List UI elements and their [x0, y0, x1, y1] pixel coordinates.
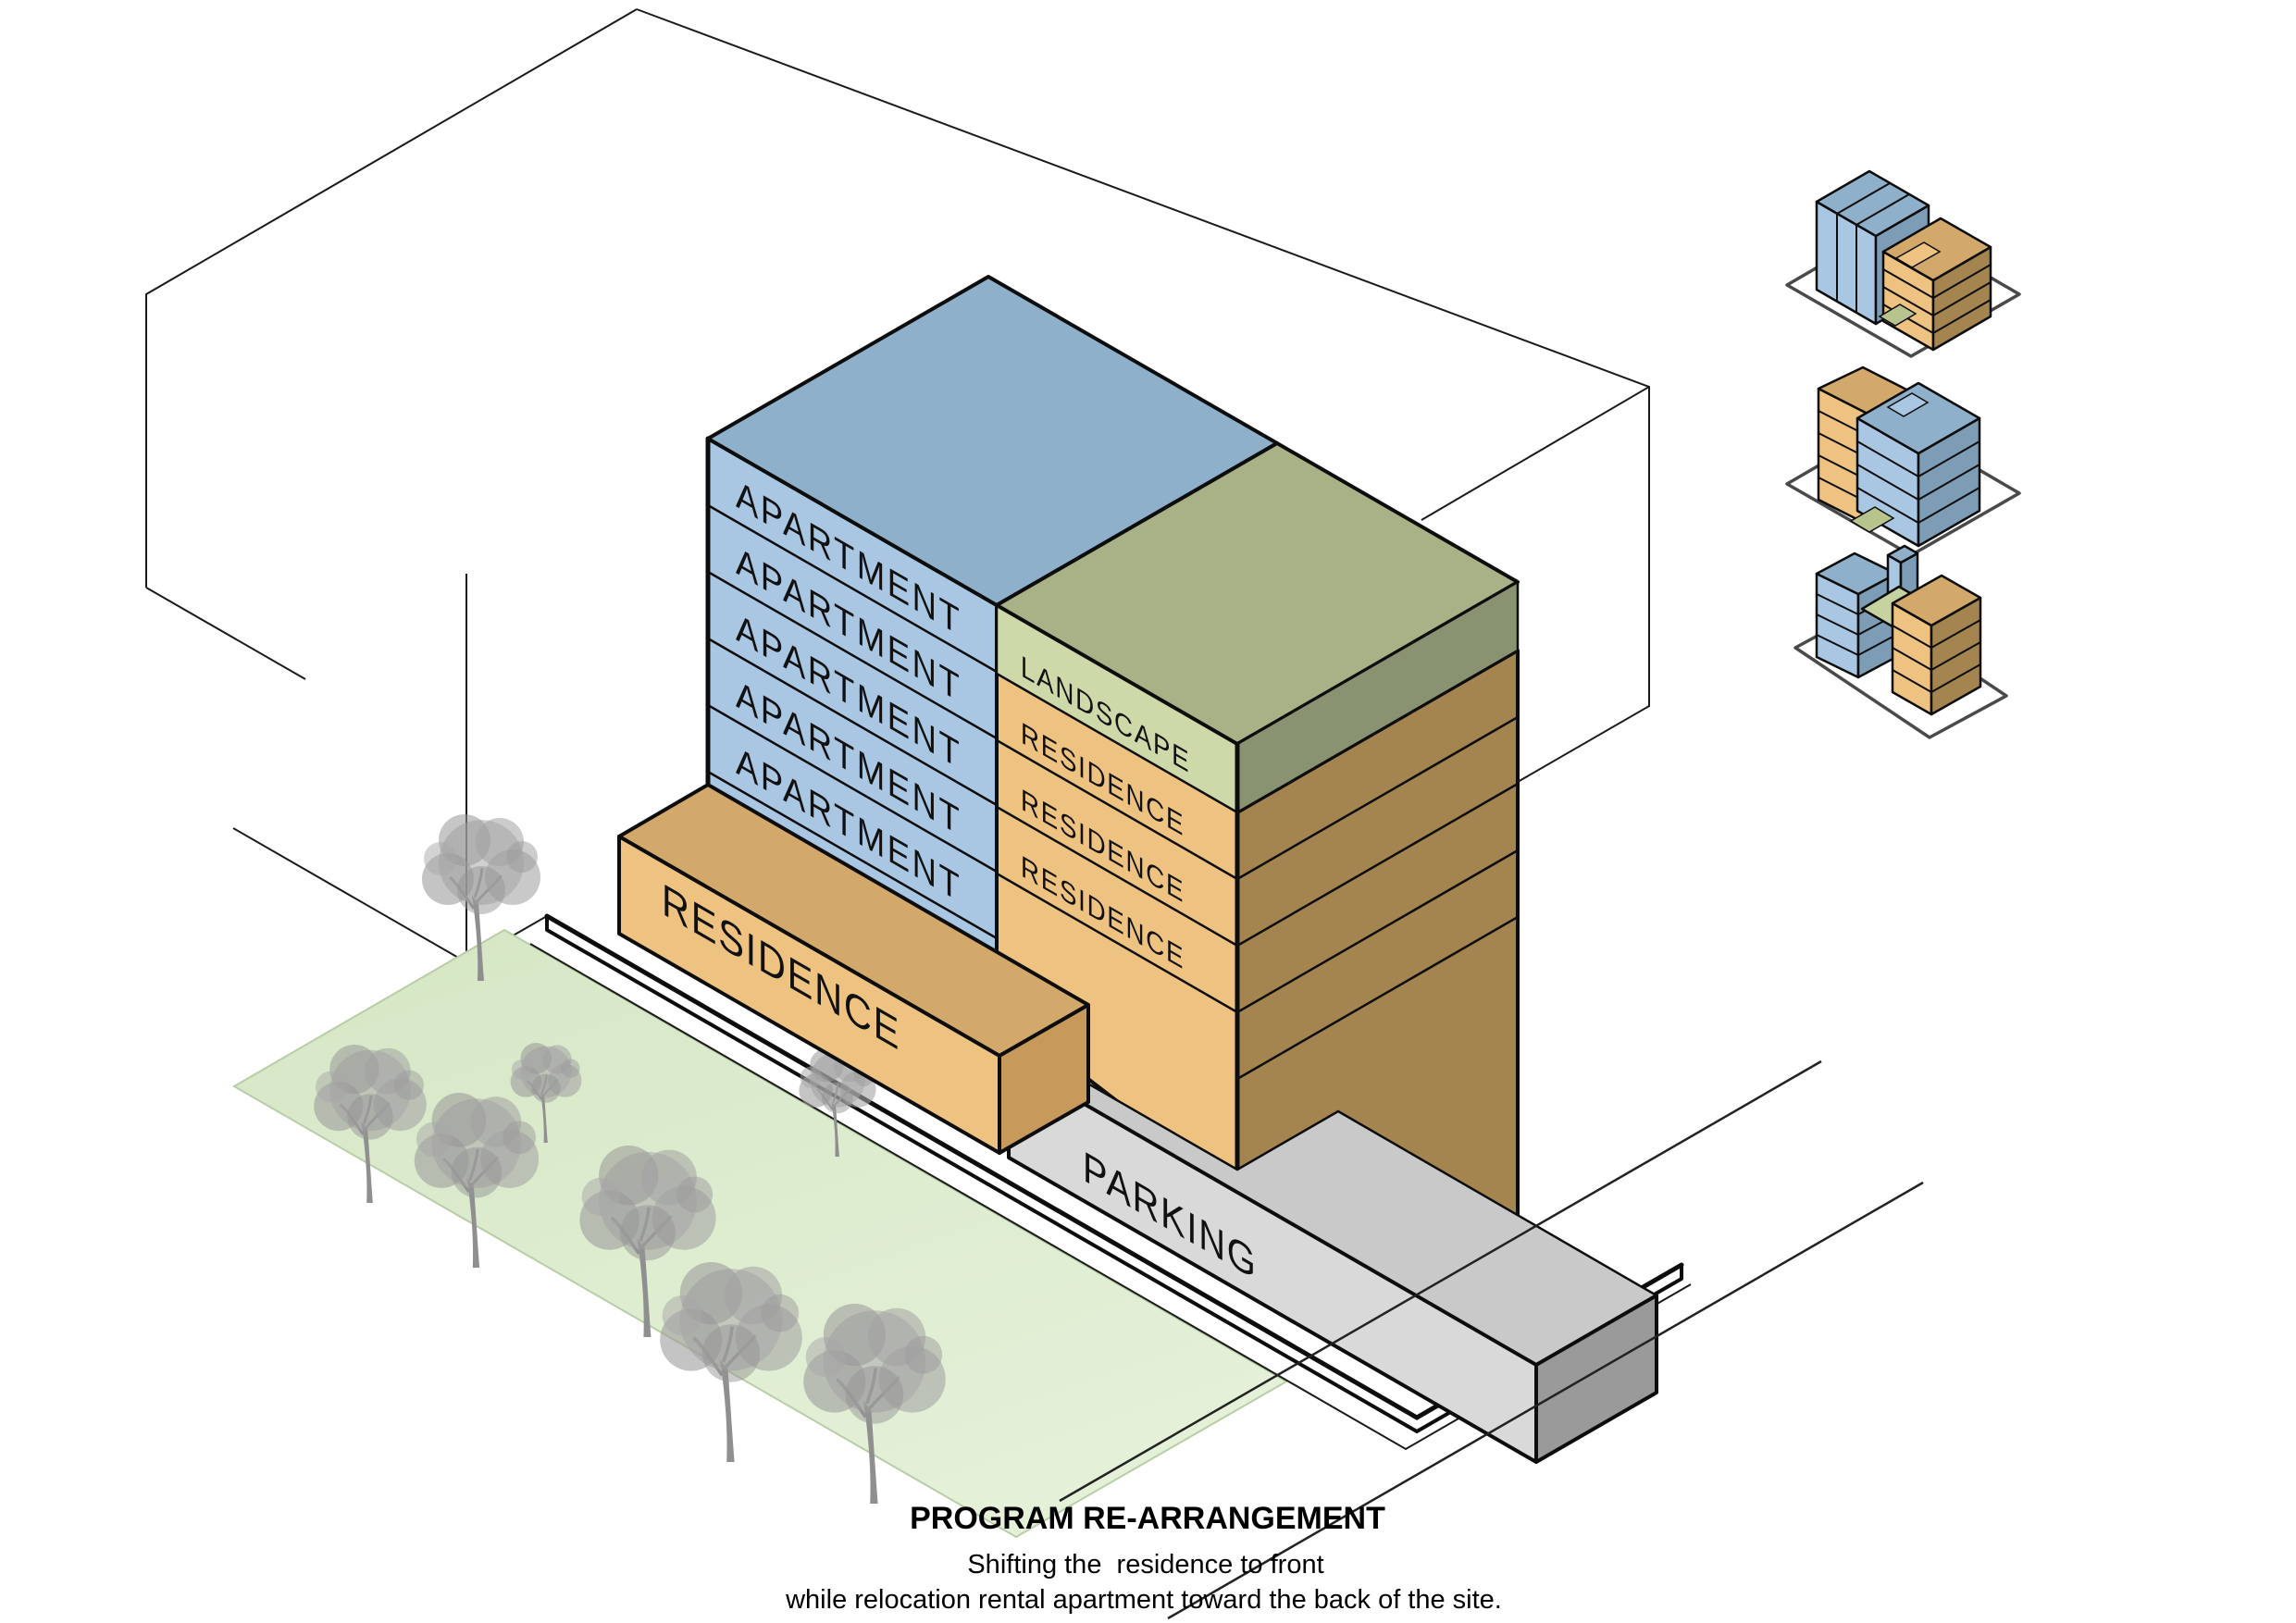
program-rearrangement-diagram: APARTMENT APARTMENT APARTMENT APARTMENT …: [0, 0, 2296, 1623]
caption-line-2: while relocation rental apartment toward…: [785, 1585, 1502, 1615]
tree: [660, 1262, 802, 1462]
caption-line-1: Shifting the residence to front: [967, 1550, 1323, 1580]
thumb3-residence-block: [1893, 576, 1980, 714]
thumbnail-option-3: [1795, 546, 2006, 737]
caption-title: PROGRAM RE-ARRANGEMENT: [910, 1501, 1385, 1536]
thumbnail-option-2: [1787, 367, 2019, 555]
thumbnail-option-1: [1787, 171, 2019, 356]
caption: PROGRAM RE-ARRANGEMENT Shifting the resi…: [785, 1501, 1502, 1615]
